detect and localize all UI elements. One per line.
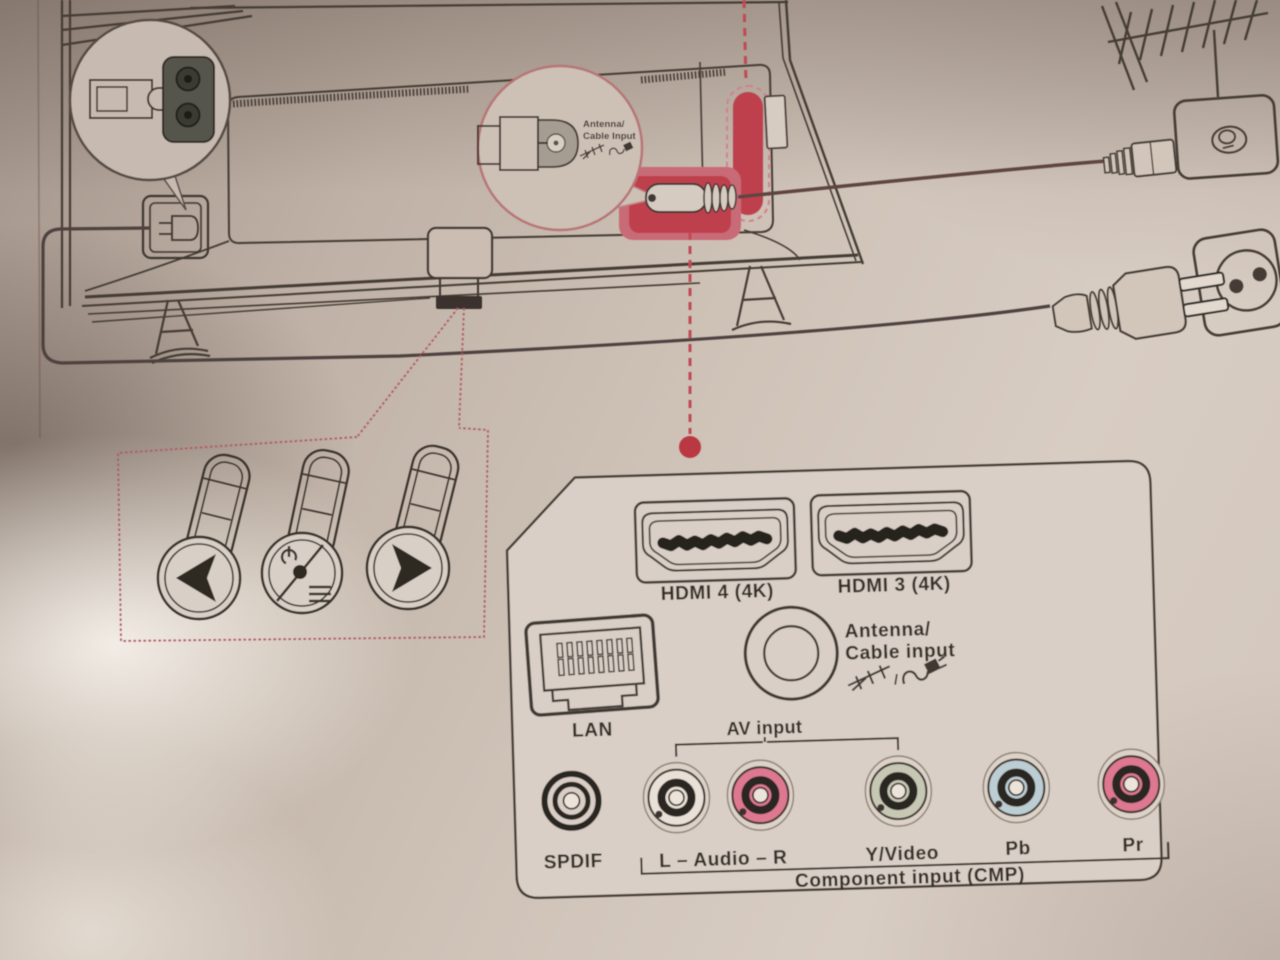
pr-jack <box>1097 748 1165 820</box>
av-input-label: AV input <box>726 717 802 739</box>
yvideo-jack <box>864 755 932 827</box>
zoom-antenna-label-line1: Antenna/ <box>583 119 625 130</box>
power-inlet <box>143 196 208 258</box>
figure8-power-plug <box>163 57 214 142</box>
antenna-wall-socket <box>1173 95 1278 180</box>
joystick-control <box>428 228 492 309</box>
page-fold-line <box>38 0 40 438</box>
coax-plug <box>1102 139 1176 179</box>
power-cable <box>43 228 1050 363</box>
ports-panel: HDMI 4 (4K) HDMI 3 (4K) LAN Antenna <box>505 460 1169 900</box>
hdmi4-label: HDMI 4 (4K) <box>661 581 775 605</box>
pb-jack <box>982 752 1050 824</box>
power-menu-button <box>262 446 352 613</box>
callout-dot <box>679 436 701 458</box>
left-button <box>158 451 254 619</box>
joystick-dot <box>293 565 307 579</box>
icon-separator: / <box>894 671 899 687</box>
aerial-antenna <box>1102 0 1268 97</box>
zoom-antenna-label-line2: Cable Input <box>583 131 637 142</box>
lan-label: LAN <box>572 720 613 742</box>
pb-label: Pb <box>1005 838 1031 860</box>
power-zoom-circle <box>70 20 230 180</box>
audio-left-jack <box>642 762 710 834</box>
yvideo-label: Y/Video <box>865 843 939 866</box>
tv-stand-feet <box>150 266 791 363</box>
audio-right-jack <box>726 759 794 831</box>
power-plug <box>1050 258 1231 350</box>
antenna-cable <box>738 161 1106 197</box>
hdmi3-label: HDMI 3 (4K) <box>837 573 951 597</box>
spdif-label: SPDIF <box>544 851 604 874</box>
right-button <box>367 442 462 609</box>
antenna-zoom-circle: Antenna/ Cable Input <box>478 66 642 230</box>
tv-manual-photo: Antenna/ Cable Input <box>0 0 1280 960</box>
audio-label: L – Audio – R <box>659 847 788 872</box>
connection-diagram: Antenna/ Cable Input <box>0 0 1280 960</box>
control-buttons <box>158 442 462 619</box>
coiled-cable <box>233 72 727 104</box>
antenna-label-line1: Antenna/ <box>844 619 931 643</box>
coax-connector <box>646 183 736 213</box>
pr-label: Pr <box>1122 835 1144 857</box>
